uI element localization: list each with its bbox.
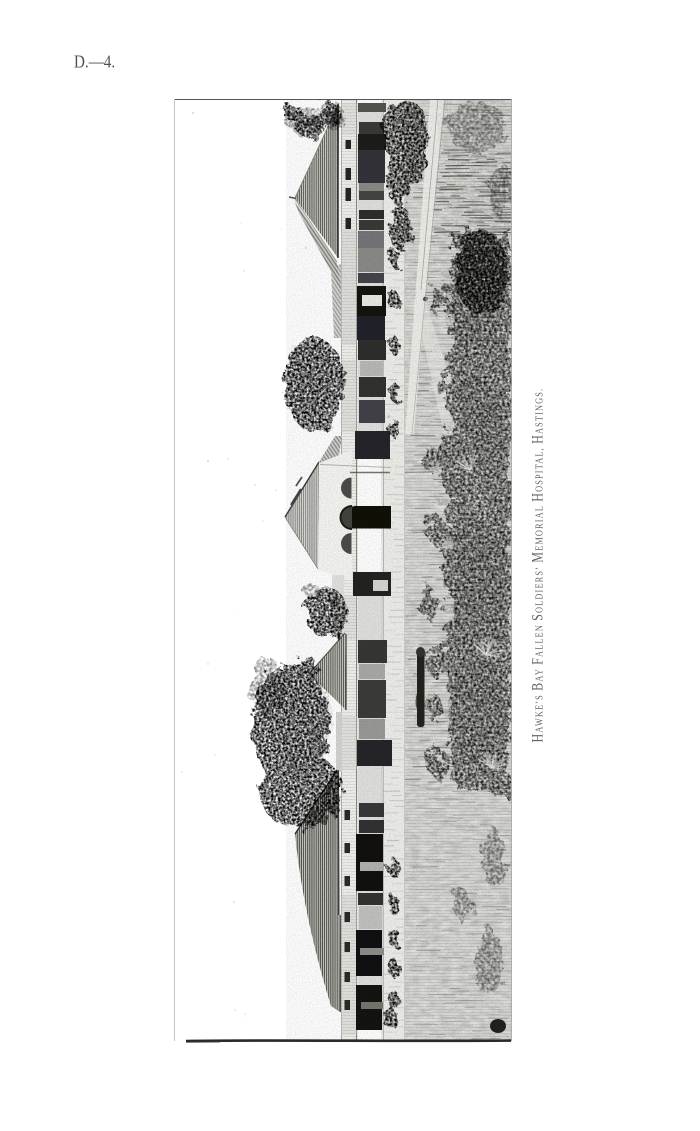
svg-text:D.—4.: D.—4. <box>74 51 115 72</box>
